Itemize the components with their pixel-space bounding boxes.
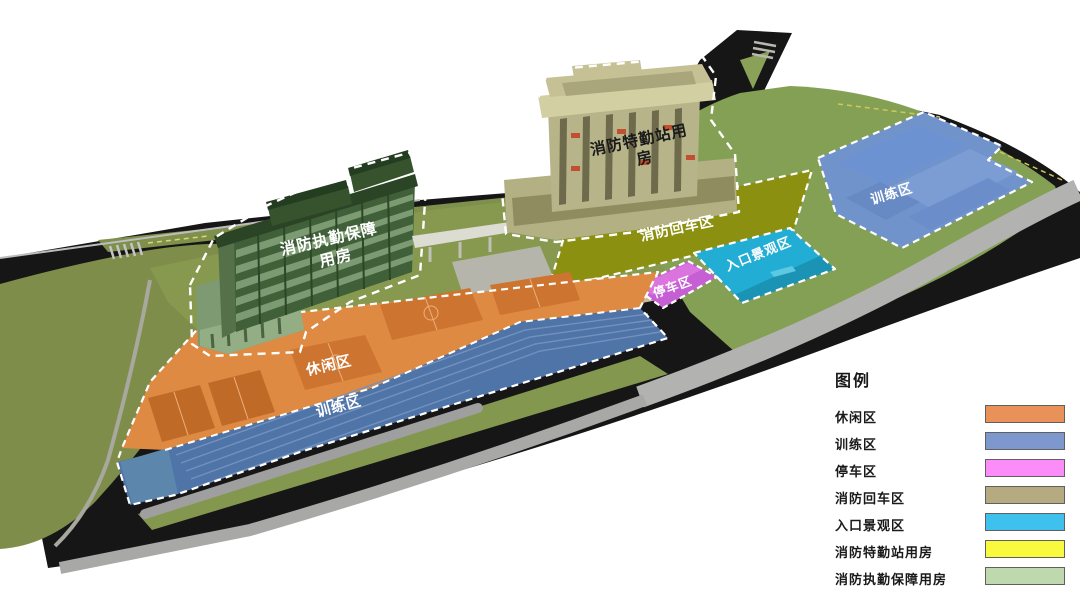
legend: 图例 休闲区 训练区 停车区 消防回车区 入口景观区 消防特勤站用房 消防执勤保… [833, 367, 1065, 592]
legend-swatch-support [985, 567, 1065, 585]
legend-label: 停车区 [835, 461, 877, 480]
legend-label: 训练区 [835, 434, 877, 453]
legend-row-station: 消防特勤站用房 [833, 538, 1065, 565]
legend-swatch-leisure [985, 405, 1065, 423]
legend-label: 入口景观区 [835, 515, 905, 534]
legend-swatch-turnaround [985, 486, 1065, 504]
legend-swatch-training [985, 432, 1065, 450]
legend-swatch-station [985, 540, 1065, 558]
legend-swatch-parking [985, 459, 1065, 477]
legend-label: 消防执勤保障用房 [835, 569, 947, 588]
legend-label: 消防特勤站用房 [835, 542, 933, 561]
legend-row-support: 消防执勤保障用房 [833, 565, 1065, 592]
legend-label: 消防回车区 [835, 488, 905, 507]
legend-label: 休闲区 [835, 407, 877, 426]
legend-row-leisure: 休闲区 [833, 403, 1065, 430]
legend-row-parking: 停车区 [833, 457, 1065, 484]
legend-row-training: 训练区 [833, 430, 1065, 457]
legend-swatch-entrance [985, 513, 1065, 531]
legend-title: 图例 [835, 367, 1065, 391]
legend-row-entrance: 入口景观区 [833, 511, 1065, 538]
legend-row-turnaround: 消防回车区 [833, 484, 1065, 511]
